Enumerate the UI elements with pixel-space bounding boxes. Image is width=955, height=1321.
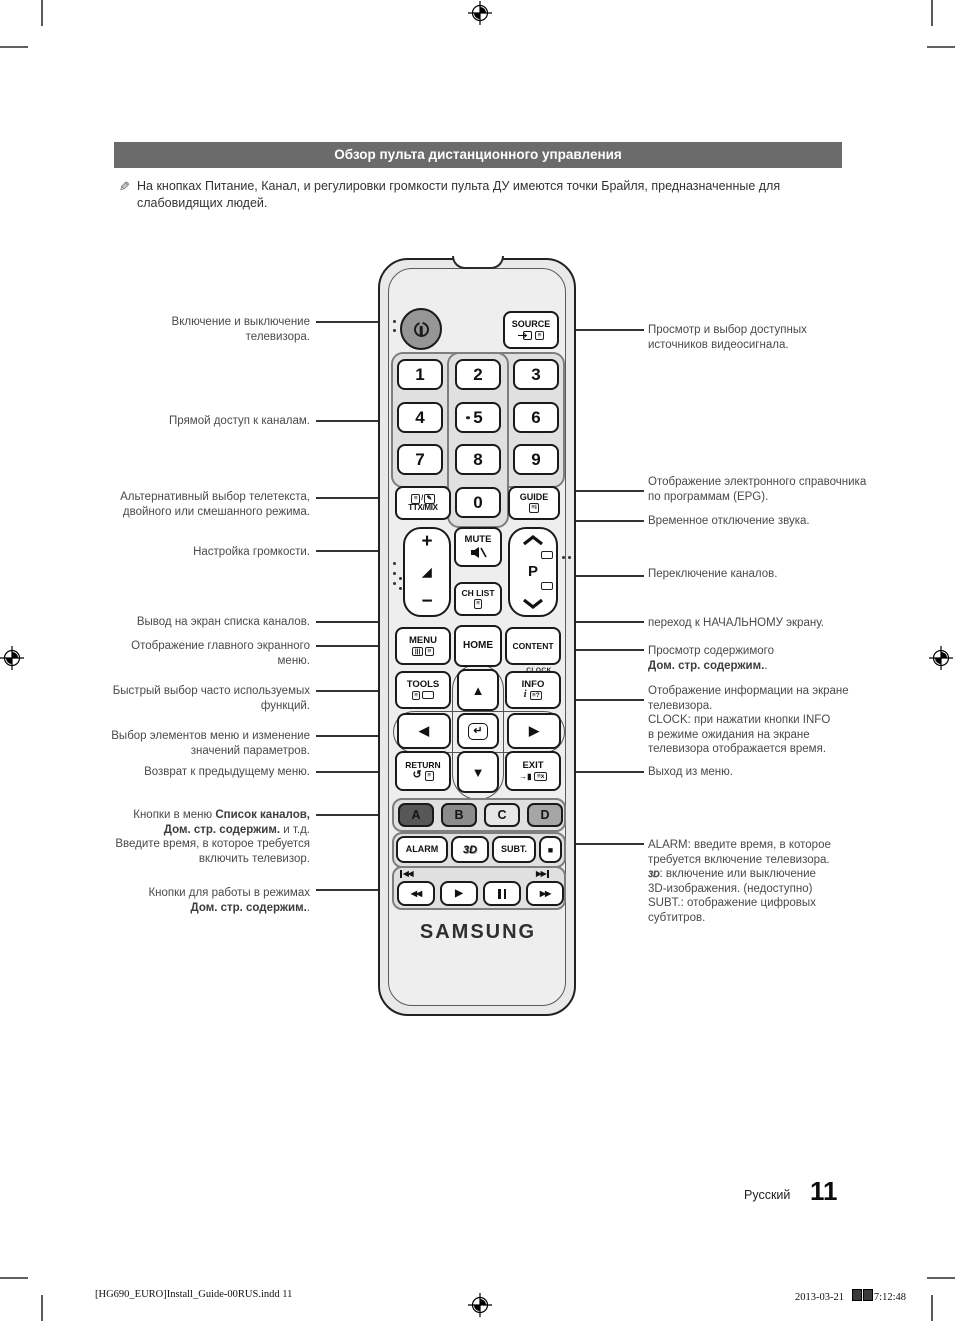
right-arrow-icon: ▶ (529, 723, 539, 739)
callout-guide: Отображение электронного справочникапо п… (648, 475, 878, 504)
info-list-icon: ≡? (530, 691, 543, 700)
ch-list-button[interactable]: CH LIST ≡ (454, 582, 502, 616)
callout-channels: Прямой доступ к каналам. (95, 414, 310, 429)
color-b-button[interactable]: B (441, 803, 477, 827)
exit-button[interactable]: EXIT →▮ ≡x (505, 751, 561, 791)
callout-transport: Кнопки для работы в режимах Дом. стр. со… (95, 886, 310, 915)
print-filename: [HG690_EURO]Install_Guide-00RUS.indd 11 (95, 1289, 292, 1300)
callout-main-menu: Отображение главного экранногоменю. (95, 639, 310, 668)
print-date: 2013-03-21 (795, 1292, 844, 1303)
arrow-right-button[interactable]: ▶ (507, 713, 561, 749)
skip-back-icon: ◀◀ (400, 870, 413, 878)
digit-6-button[interactable]: 6 (513, 402, 559, 433)
callout-exit: Выход из меню. (648, 765, 878, 780)
color-d-button[interactable]: D (527, 803, 563, 827)
section-title: Обзор пульта дистанционного управления (334, 147, 622, 162)
footer-language: Русский (744, 1188, 790, 1202)
digit-3-button[interactable]: 3 (513, 359, 559, 390)
digit-2-button[interactable]: 2 (455, 359, 501, 390)
power-icon (414, 322, 429, 337)
volume-icon: ◢ (422, 567, 431, 577)
ttx-mix-button[interactable]: ≡/✎ TTX/MIX (395, 486, 451, 520)
braille-dot (466, 416, 470, 420)
rewind-button[interactable]: ◀◀ (397, 881, 435, 906)
3d-mini-icon: 3D (648, 869, 660, 879)
return-arrow-icon: ↺ (412, 771, 421, 780)
up-arrow-icon: ▲ (472, 683, 485, 698)
channel-digits-icon (541, 582, 553, 590)
footer-page-number: 11 (810, 1176, 838, 1207)
digit-4-button[interactable]: 4 (397, 402, 443, 433)
ch-list-icon: ≡ (474, 599, 483, 608)
braille-note: На кнопках Питание, Канал, и регулировки… (137, 178, 837, 212)
info-icons: i ≡? (524, 691, 543, 700)
missing-glyph-box (863, 1289, 873, 1301)
digit-7-button[interactable]: 7 (397, 444, 443, 475)
menu-button[interactable]: MENU |||≡ (395, 627, 451, 665)
callout-return: Возврат к предыдущему меню. (95, 765, 310, 780)
subtitle-button[interactable]: SUBT. (492, 836, 536, 863)
fast-forward-icon: ▶▶ (540, 889, 550, 898)
tools-icons: ≡ (412, 691, 435, 700)
callout-teletext: Альтернативный выбор телетекста,двойного… (95, 490, 310, 519)
home-button[interactable]: HOME (454, 625, 502, 667)
color-c-button[interactable]: C (484, 803, 520, 827)
mute-button[interactable]: MUTE (454, 527, 502, 567)
play-button[interactable]: ▶ (440, 881, 478, 906)
tools-jump-icon (422, 691, 434, 699)
callout-info: Отображение информации на экране телевиз… (648, 684, 878, 757)
callout-mute: Временное отключение звука. (648, 514, 878, 529)
volume-rocker[interactable]: + ◢ − (403, 527, 451, 617)
channel-down-icon (521, 598, 545, 609)
3d-icon: 3D (463, 844, 477, 856)
callout-power: Включение и выключениетелевизора. (95, 315, 310, 344)
source-list-icon: ≡ (535, 331, 544, 340)
power-button[interactable] (400, 308, 442, 350)
samsung-logo: SAMSUNG (398, 921, 558, 944)
guide-epg-icon: ≡i (529, 503, 540, 512)
color-a-button[interactable]: A (398, 803, 434, 827)
digit-5-button[interactable]: 5 (455, 402, 501, 433)
arrow-down-button[interactable]: ▼ (457, 751, 499, 793)
callout-menu-select: Выбор элементов меню и изменениезначений… (95, 729, 310, 758)
callout-channel-list: Вывод на экран списка каналов. (95, 615, 310, 630)
channel-rocker[interactable]: P (508, 527, 558, 617)
info-i-icon: i (524, 691, 527, 699)
pause-icon (498, 889, 507, 899)
callout-alarm: ALARM: введите время, в которое требуетс… (648, 838, 878, 926)
fast-forward-button[interactable]: ▶▶ (526, 881, 564, 906)
tools-list-icon: ≡ (412, 691, 421, 700)
3d-button[interactable]: 3D (451, 836, 489, 863)
source-icons: ≡ (518, 331, 544, 340)
stop-icon: ■ (548, 845, 553, 855)
section-title-bar: Обзор пульта дистанционного управления (114, 142, 842, 168)
guide-button[interactable]: GUIDE ≡i (508, 486, 560, 520)
return-button[interactable]: RETURN ↺ ≡ (395, 751, 451, 791)
menu-columns-icon: ||| (412, 647, 422, 656)
skip-forward-icon: ▶▶ (536, 870, 549, 878)
callout-source: Просмотр и выбор доступныхисточников вид… (648, 323, 878, 352)
return-icons: ↺ ≡ (412, 771, 433, 780)
info-button[interactable]: INFO i ≡? (505, 671, 561, 709)
exit-list-icon: ≡x (534, 772, 546, 781)
mute-speaker-icon (470, 546, 487, 559)
print-time: 7:12:48 (874, 1292, 906, 1303)
callout-volume: Настройка громкости. (95, 545, 310, 560)
callout-home: переход к НАЧАЛЬНОМУ экрану. (648, 616, 878, 631)
exit-icons: →▮ ≡x (519, 772, 547, 781)
menu-list-icon: ≡ (425, 647, 434, 656)
stop-button[interactable]: ■ (539, 836, 562, 863)
pause-button[interactable] (483, 881, 521, 906)
digit-9-button[interactable]: 9 (513, 444, 559, 475)
alarm-button[interactable]: ALARM (396, 836, 448, 863)
play-icon: ▶ (455, 888, 463, 899)
channel-p-label: P (528, 566, 538, 578)
return-list-icon: ≡ (425, 771, 434, 780)
callout-channel-switch: Переключение каналов. (648, 567, 878, 582)
menu-icons: |||≡ (412, 647, 433, 656)
content-button[interactable]: CONTENT (505, 627, 561, 665)
exit-door-icon: →▮ (519, 772, 531, 781)
source-input-icon (518, 331, 532, 340)
tools-button[interactable]: TOOLS ≡ (395, 671, 451, 709)
arrow-up-button[interactable]: ▲ (457, 669, 499, 711)
enter-button[interactable]: ↵ (457, 713, 499, 749)
digit-0-button[interactable]: 0 (455, 487, 501, 518)
callout-content: Просмотр содержимого Дом. стр. содержим.… (648, 644, 878, 673)
missing-glyph-box (852, 1289, 862, 1301)
down-arrow-icon: ▼ (472, 765, 485, 780)
source-button[interactable]: SOURCE ≡ (503, 311, 559, 349)
channel-up-icon (521, 535, 545, 546)
remote-top-notch (452, 256, 504, 269)
left-arrow-icon: ◀ (419, 723, 429, 739)
enter-icon: ↵ (468, 723, 487, 740)
volume-down-label: − (421, 596, 432, 608)
callout-color-buttons: Кнопки в меню Список каналов, Дом. стр. … (95, 808, 310, 866)
volume-up-label: + (421, 536, 432, 548)
digit-8-button[interactable]: 8 (455, 444, 501, 475)
digit-1-button[interactable]: 1 (397, 359, 443, 390)
print-datetime: 2013-03-21 7:12:48 (700, 1289, 906, 1303)
arrow-left-button[interactable]: ◀ (397, 713, 451, 749)
callout-tools: Быстрый выбор часто используемыхфункций. (95, 684, 310, 713)
channel-return-icon (541, 551, 553, 559)
rewind-icon: ◀◀ (411, 889, 421, 898)
